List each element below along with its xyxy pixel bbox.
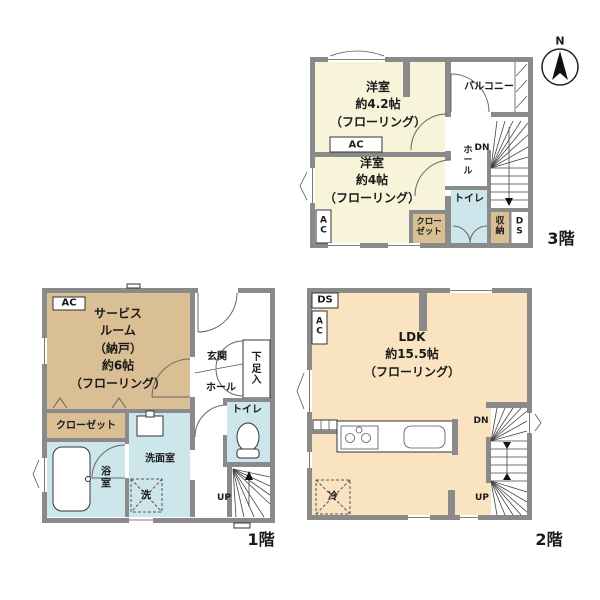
toilet-label-f1: トイレ xyxy=(232,404,262,416)
entrance-label: 玄関 xyxy=(207,351,227,363)
balcony-label: バルコニー xyxy=(464,81,514,93)
shoe-cabinet-label: 下 足 入 xyxy=(252,352,262,387)
floorplan-canvas: 洋室 約4.2帖 （フローリング） 洋室 約4帖 （フローリング） AC A C… xyxy=(0,0,600,600)
bath-label: 浴 室 xyxy=(101,467,111,490)
up-label-f1: UP xyxy=(217,493,231,503)
closet-label-f1: クローゼット xyxy=(56,420,116,432)
room-label-western-4-2: 洋室 約4.2帖 （フローリング） xyxy=(330,79,426,131)
laundry-label: 洗 xyxy=(141,490,151,502)
dn-label-f3: DN xyxy=(474,143,489,153)
hall-label-f1: ホール xyxy=(206,382,236,394)
up-label-f2: UP xyxy=(475,493,489,503)
floor2-plan xyxy=(297,288,541,520)
ds-label-f3: D S xyxy=(516,217,523,238)
dn-label-f2: DN xyxy=(473,416,488,426)
floor3-label: 3階 xyxy=(547,230,574,248)
ac-label-f3-top: AC xyxy=(348,139,363,151)
floor2-label: 2階 xyxy=(535,531,562,549)
bathtub-icon xyxy=(53,447,90,511)
washroom-label: 洗面室 xyxy=(145,453,175,465)
toilet-label-f3: トイレ xyxy=(454,193,484,205)
ac-label-f3-left: A C xyxy=(320,216,327,237)
ac-label-f2: A C xyxy=(316,317,323,338)
room-label-ldk: LDK 約15.5帖 （フローリング） xyxy=(364,329,460,381)
storage-label-f3: 収 納 xyxy=(495,217,504,238)
room-label-service-room: サービス ルーム （納戸） 約6帖 （フローリング） xyxy=(70,306,166,393)
toilet-icon xyxy=(237,423,259,458)
compass-icon xyxy=(542,49,578,85)
room-label-western-4: 洋室 約4帖 （フローリング） xyxy=(324,155,420,207)
ds-label-f2: DS xyxy=(317,294,333,306)
hall-label-f3: ホ ー ル xyxy=(463,145,472,176)
compass-north-label: N xyxy=(555,36,564,49)
refrigerator-label: 冷 xyxy=(328,491,338,503)
floor1-label: 1階 xyxy=(247,531,274,549)
closet-label-f3: クロー ゼット xyxy=(416,218,442,238)
